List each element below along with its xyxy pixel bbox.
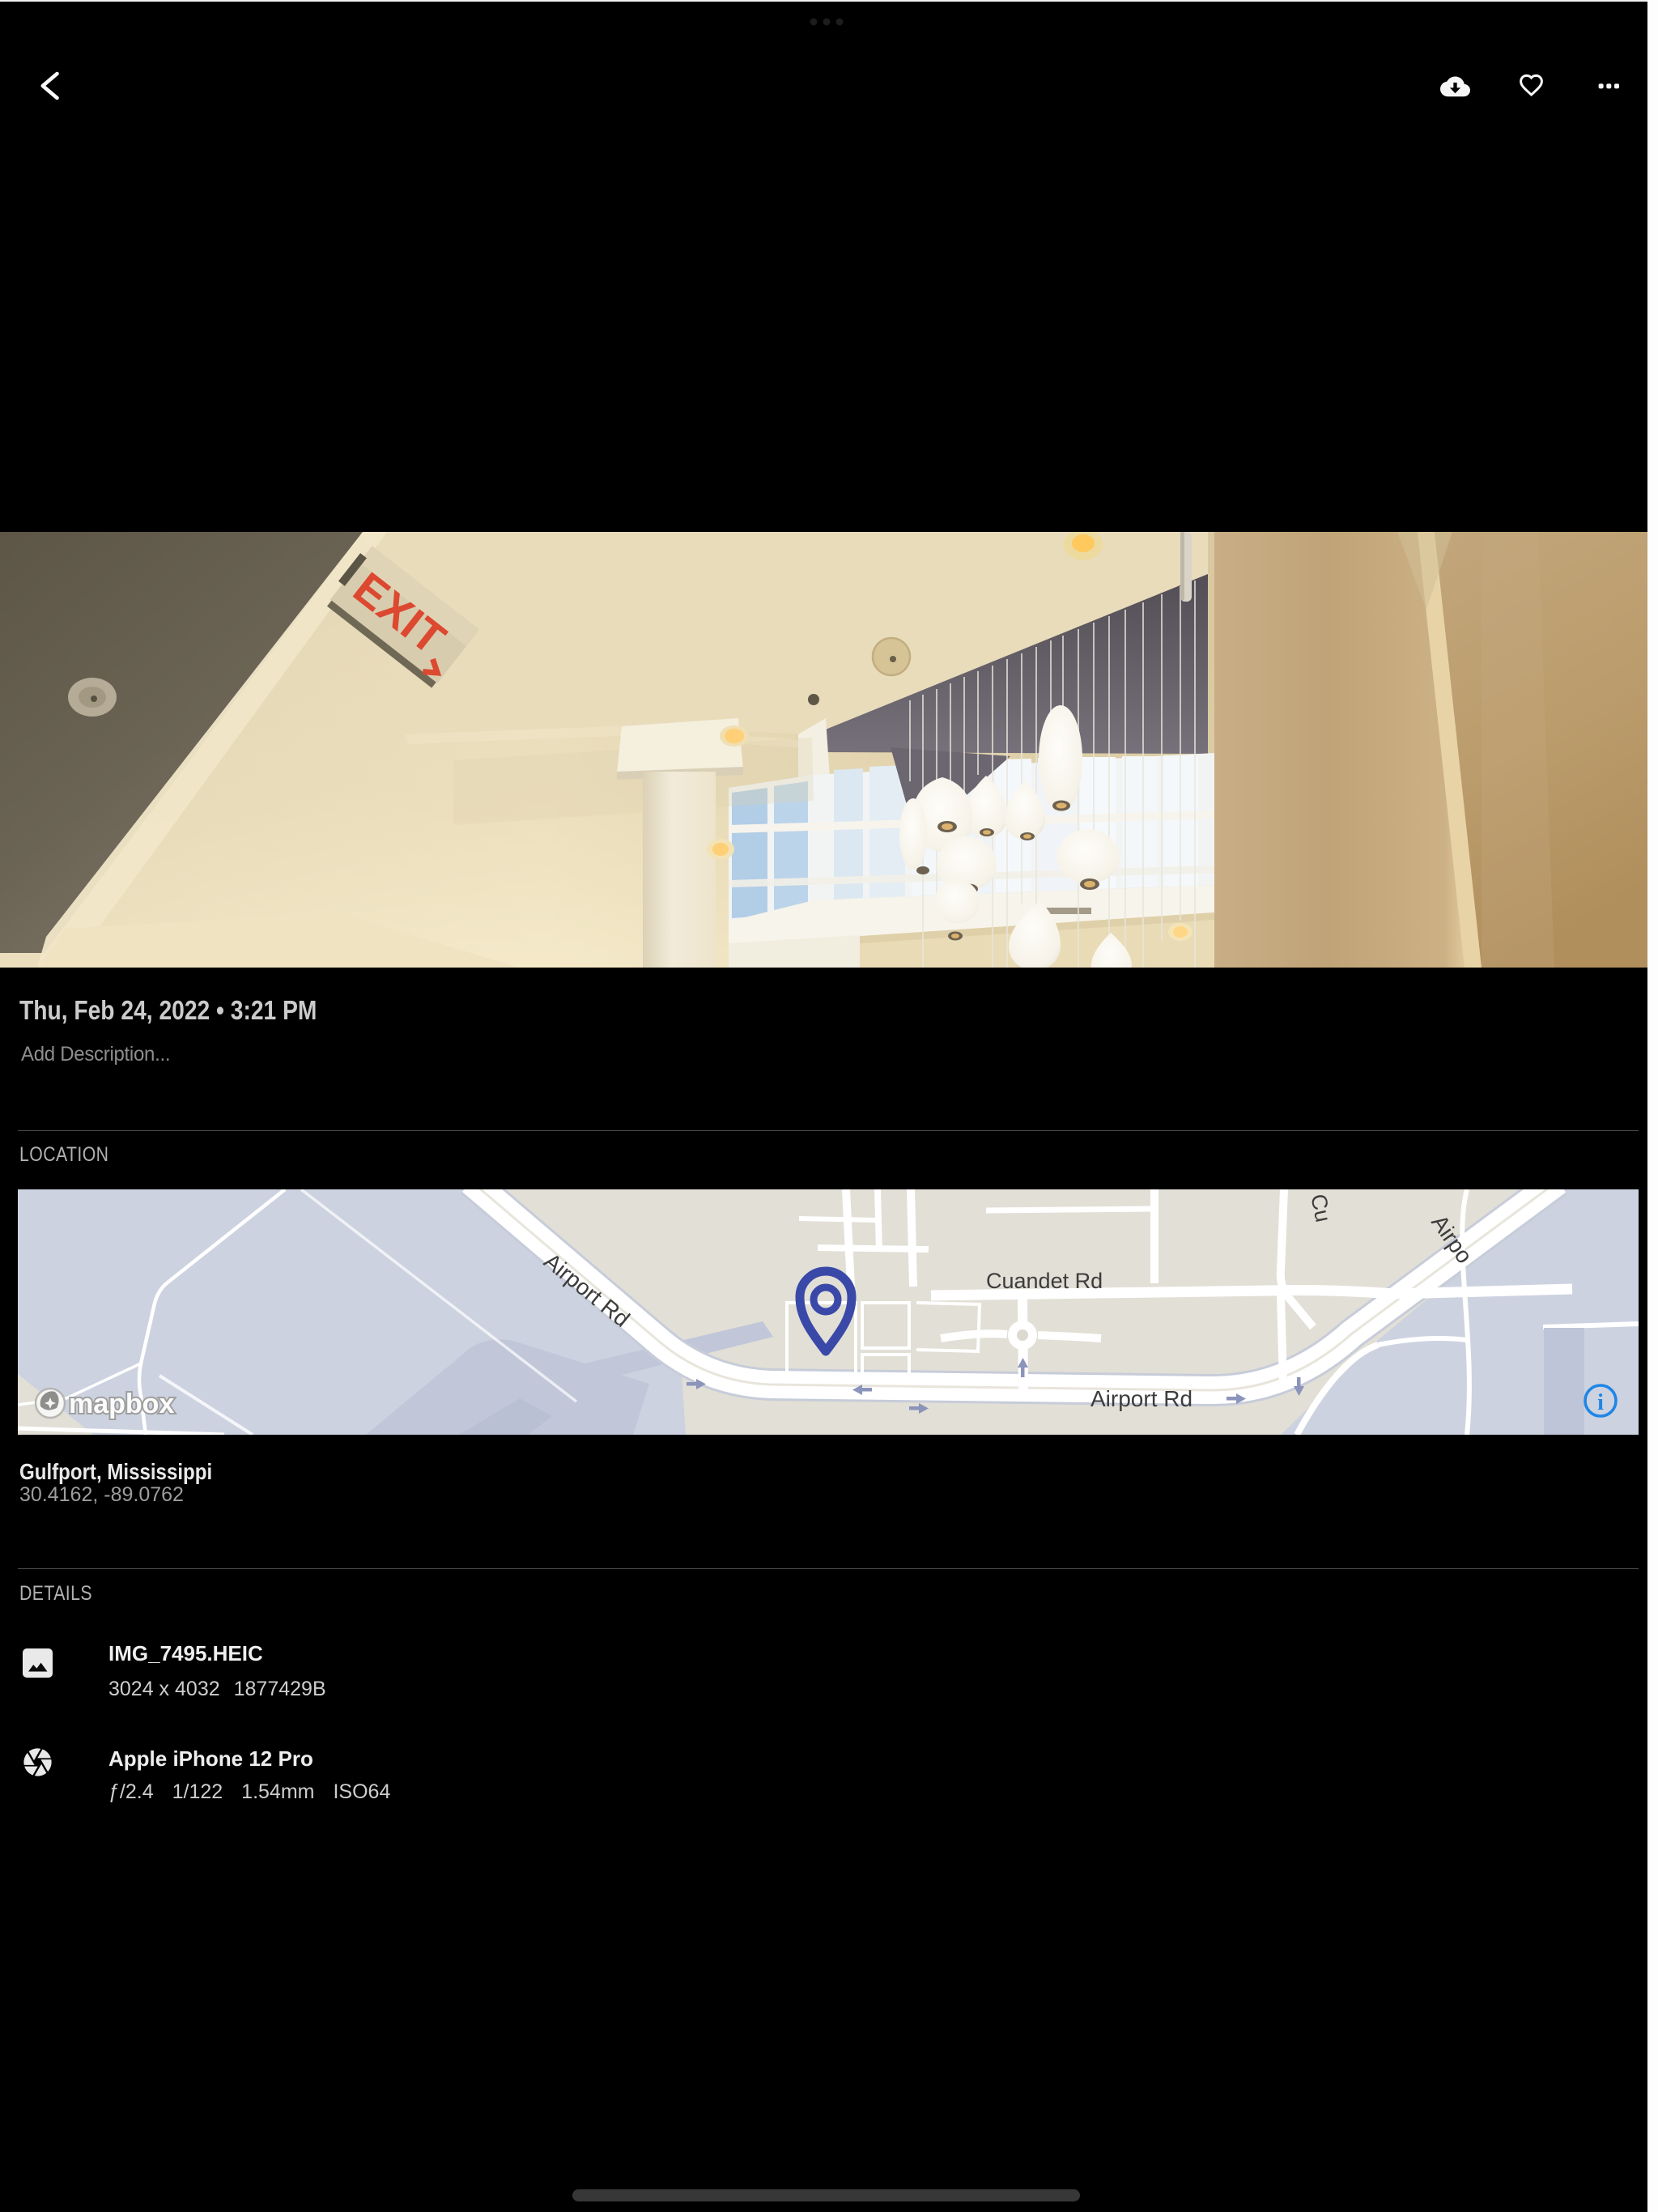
svg-text:i: i xyxy=(1597,1390,1604,1415)
svg-text:mapbox: mapbox xyxy=(69,1389,174,1419)
svg-text:Cuandet Rd: Cuandet Rd xyxy=(986,1269,1103,1293)
svg-text:Airport Rd: Airport Rd xyxy=(1090,1386,1192,1411)
